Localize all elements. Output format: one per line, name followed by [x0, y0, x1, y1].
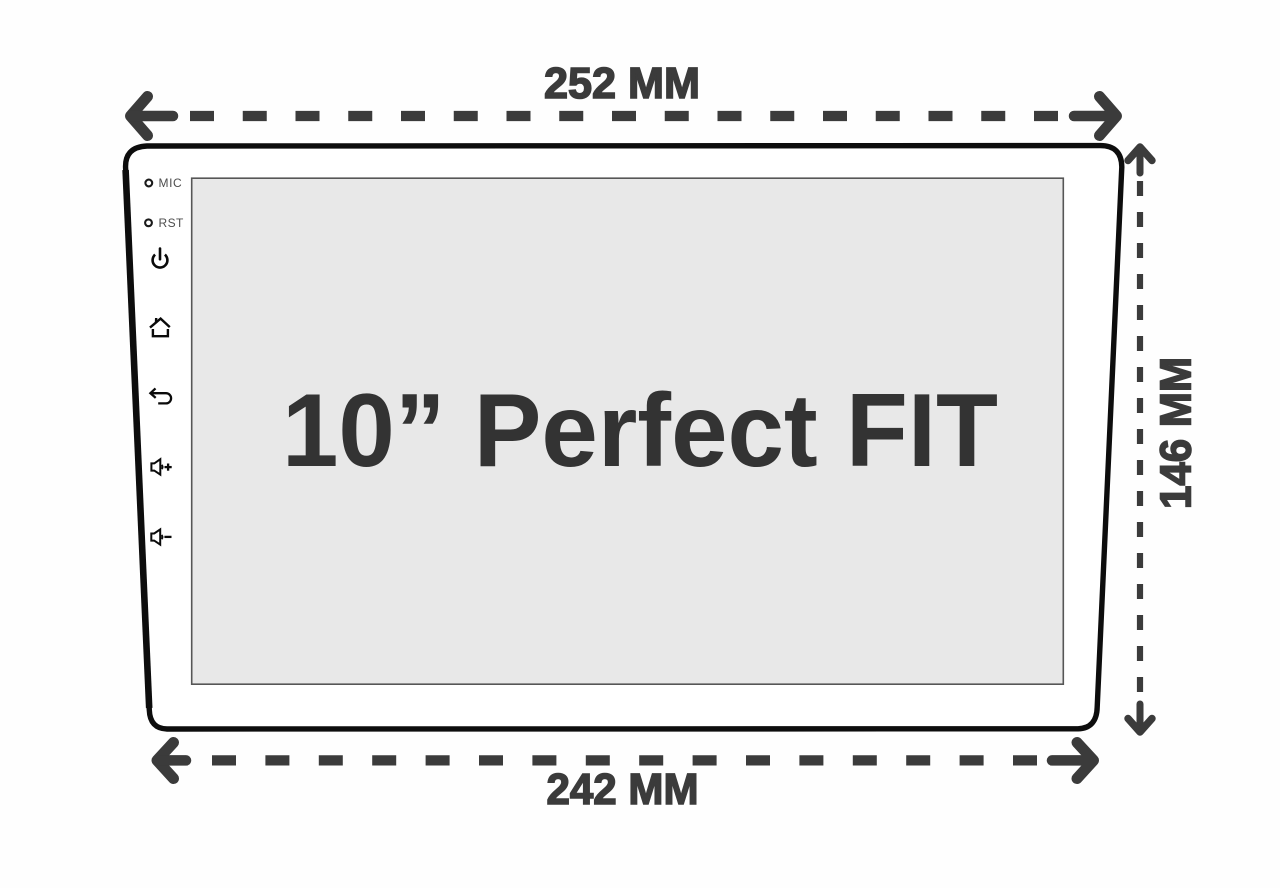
svg-text:252 MM: 252 MM: [544, 59, 700, 108]
svg-text:10” Perfect FIT: 10” Perfect FIT: [282, 373, 998, 489]
svg-text:RST: RST: [159, 216, 184, 230]
svg-text:242 MM: 242 MM: [547, 765, 699, 814]
svg-text:MIC: MIC: [159, 176, 183, 190]
svg-text:146 MM: 146 MM: [1152, 357, 1201, 509]
